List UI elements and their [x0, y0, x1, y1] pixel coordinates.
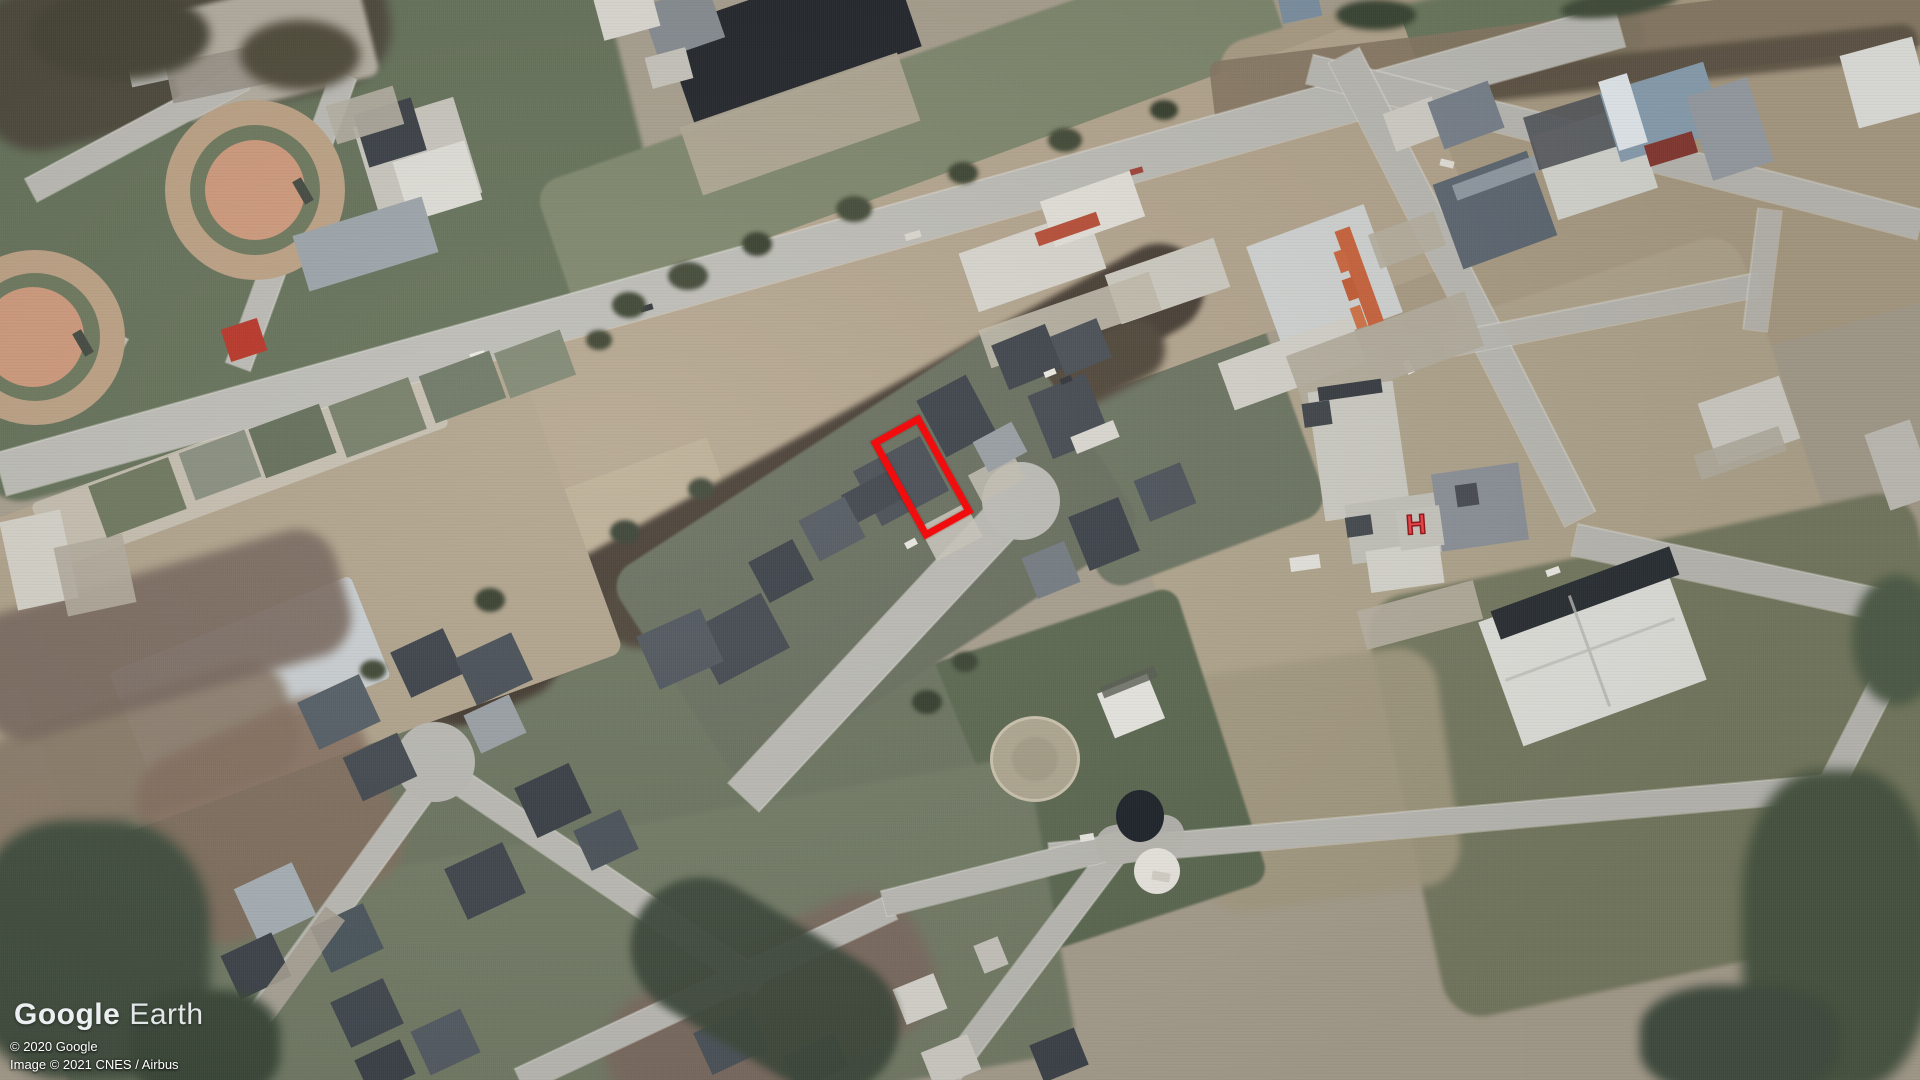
tree: [668, 262, 708, 290]
tree-row: [1336, 0, 1416, 30]
tree: [952, 652, 978, 672]
attribution-line-2: Image © 2021 CNES / Airbus: [10, 1056, 179, 1074]
logo-google-wordmark: Google: [14, 998, 120, 1031]
attribution-line-1: © 2020 Google: [10, 1038, 179, 1056]
hospital-helipad-h: H: [1405, 510, 1427, 539]
tree: [688, 478, 714, 500]
motel-parking: [53, 533, 136, 616]
hospital-dark-block: [1301, 400, 1332, 428]
tree: [948, 162, 978, 184]
tree: [1048, 128, 1082, 152]
tree: [586, 330, 612, 350]
tree: [912, 690, 942, 714]
tree: [360, 660, 386, 680]
tree-cluster: [1640, 985, 1840, 1080]
logo-earth-wordmark: Earth: [129, 998, 203, 1031]
tree: [612, 292, 646, 318]
tree: [475, 588, 505, 612]
google-earth-viewport[interactable]: H GoogleEarth © 2020 Google Image © 2021…: [0, 0, 1920, 1080]
tree-cluster: [240, 20, 360, 90]
hospital-dark-block: [1455, 483, 1480, 508]
ball-diamond-infield: [205, 140, 305, 240]
tree: [836, 196, 872, 222]
reservoir-center: [1012, 737, 1058, 781]
tree: [610, 520, 640, 544]
imagery-layer: [0, 0, 1920, 1080]
hospital-south-wing: [1431, 462, 1529, 551]
hospital-dark-block: [1345, 514, 1374, 537]
google-earth-logo: GoogleEarth: [14, 998, 204, 1032]
water-tower-tank: [1116, 790, 1164, 842]
tree: [1150, 100, 1178, 120]
tree: [742, 232, 772, 256]
attribution: © 2020 Google Image © 2021 CNES / Airbus: [10, 1038, 179, 1074]
